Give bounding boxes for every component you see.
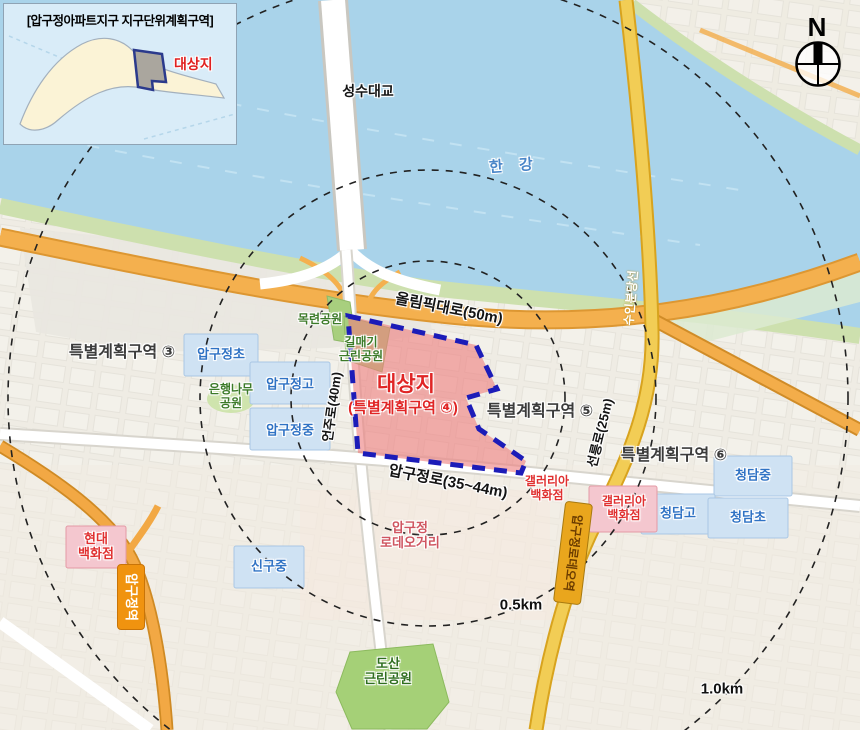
- hyundai-dept-block: [66, 526, 126, 568]
- inset-graphics: [4, 4, 236, 144]
- rodeo-district-tint: [300, 490, 550, 620]
- eunhaeng-park-area: [207, 385, 255, 413]
- dosan-park-area: [336, 644, 449, 729]
- inset-district-shape: [20, 38, 224, 130]
- galleria-dept-block: [589, 486, 657, 532]
- inset-overview-panel: [압구정아파트지구 지구단위계획구역] 대상지: [3, 3, 237, 145]
- map-canvas: N 성수대교 한 강 수인분당선 올림픽대로(50m) 압구정로(35~44m)…: [0, 0, 860, 730]
- compass-rose: [797, 43, 840, 86]
